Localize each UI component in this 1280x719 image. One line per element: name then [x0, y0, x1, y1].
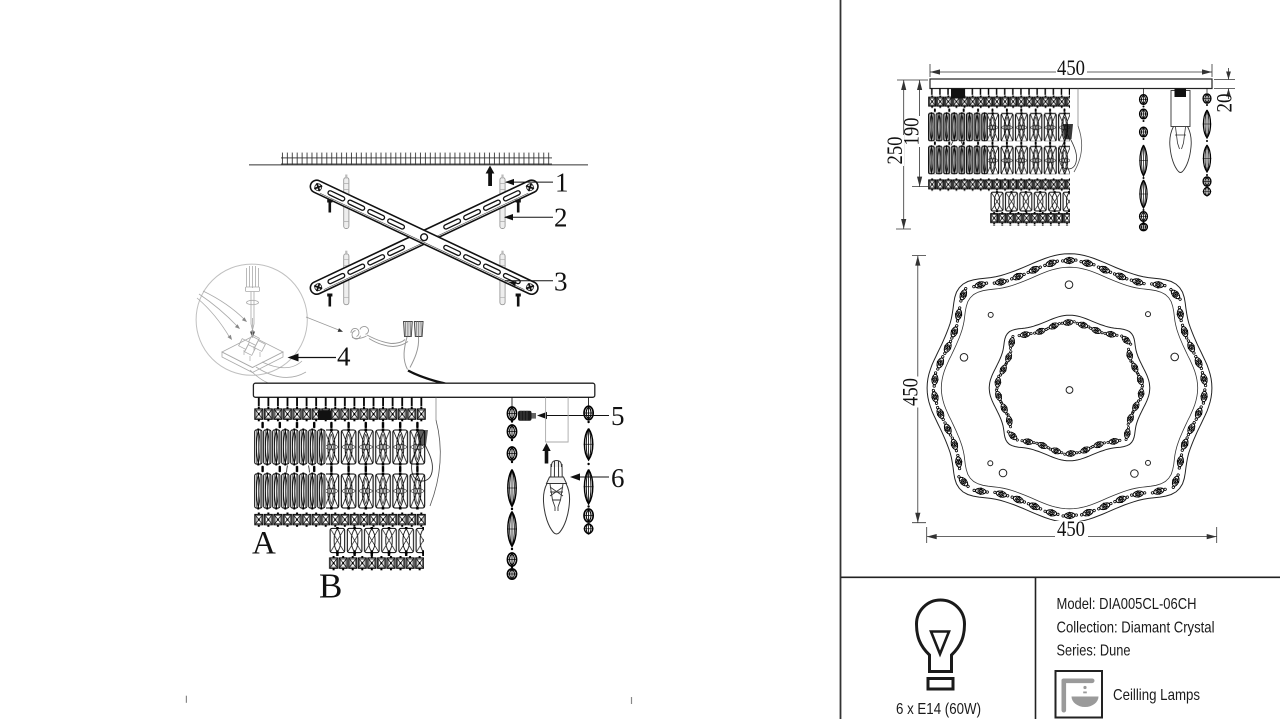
svg-text:1: 1 [555, 168, 569, 198]
svg-text:Model: DIA005CL-06CH: Model: DIA005CL-06CH [1057, 596, 1197, 613]
svg-text:B: B [319, 567, 342, 606]
svg-text:Ceilling Lamps: Ceilling Lamps [1113, 687, 1200, 704]
svg-text:6 x E14 (60W): 6 x E14 (60W) [896, 701, 981, 718]
svg-text:Series: Dune: Series: Dune [1057, 643, 1131, 660]
svg-text:20: 20 [1212, 94, 1237, 113]
svg-text:6: 6 [611, 463, 625, 493]
svg-text:2: 2 [554, 203, 568, 233]
svg-text:4: 4 [337, 342, 351, 372]
svg-text:450: 450 [898, 378, 923, 406]
svg-text:A: A [252, 526, 276, 562]
svg-text:450: 450 [1057, 55, 1085, 80]
svg-text:450: 450 [1057, 516, 1085, 541]
svg-text:3: 3 [554, 267, 568, 297]
svg-text:5: 5 [611, 401, 625, 431]
svg-text:Collection: Diamant Crystal: Collection: Diamant Crystal [1057, 620, 1215, 637]
svg-text:190: 190 [899, 118, 924, 146]
